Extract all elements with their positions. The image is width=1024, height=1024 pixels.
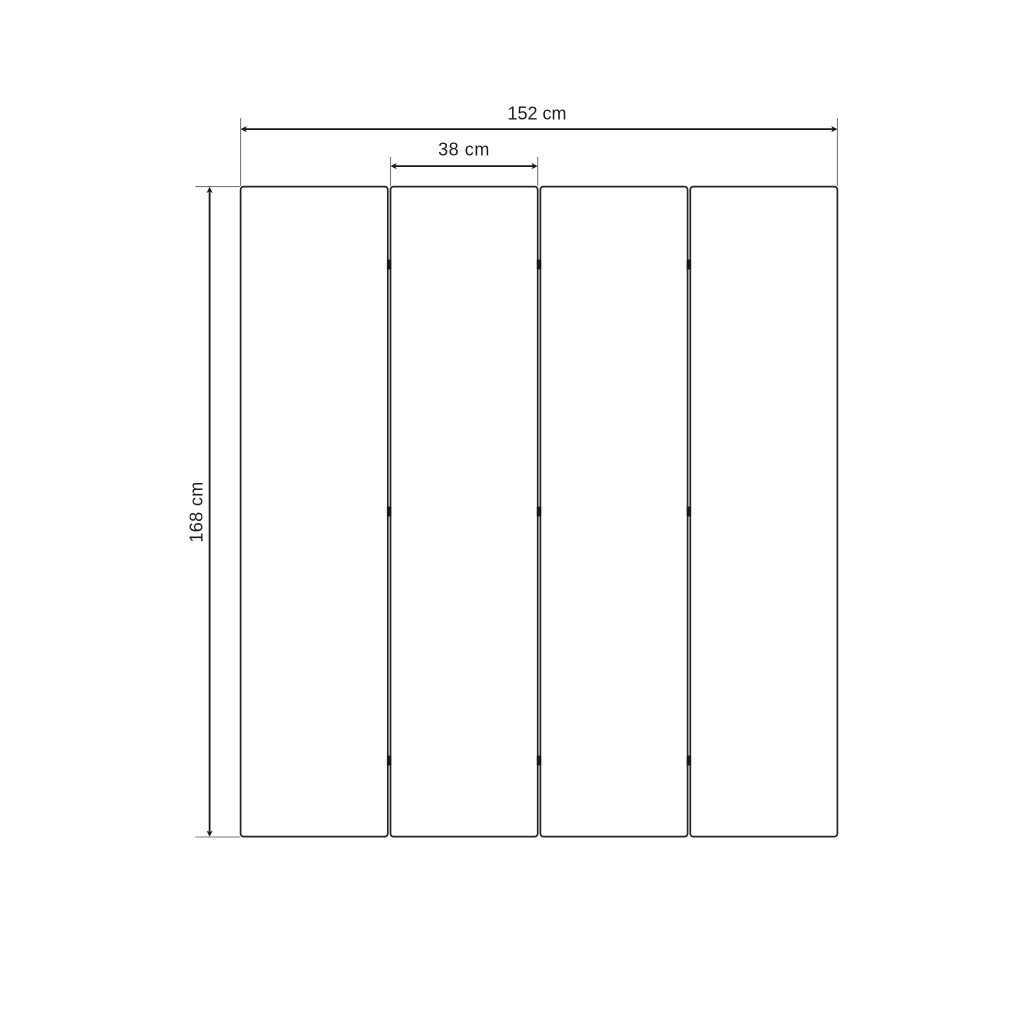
svg-text:38 cm: 38 cm — [438, 139, 490, 159]
svg-text:168 cm: 168 cm — [187, 481, 207, 542]
svg-text:152 cm: 152 cm — [507, 104, 566, 124]
